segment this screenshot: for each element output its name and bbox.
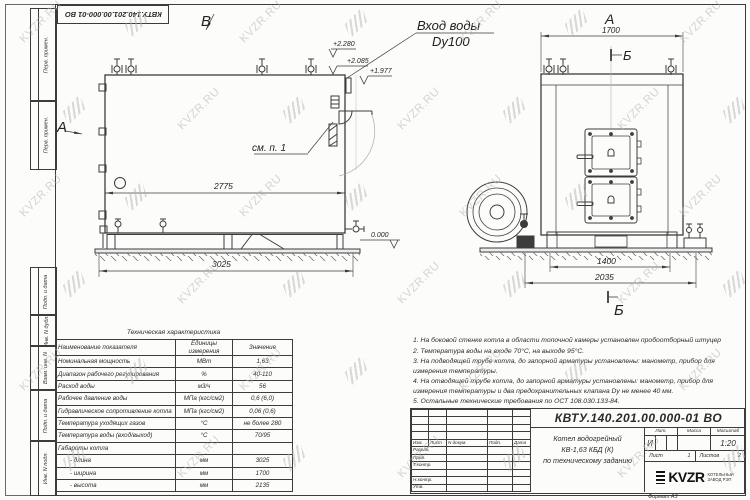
view-a-arrow	[66, 131, 82, 134]
base-frame	[107, 235, 343, 250]
water-inlet-flange	[329, 78, 375, 176]
sheet-number: 1	[688, 453, 691, 459]
scale-value: 1:20	[711, 436, 745, 451]
table-row: - высотамм2135	[56, 479, 293, 491]
role-tkontr: Т.контр.	[412, 462, 447, 469]
elevation-2280: +2.280	[333, 41, 355, 48]
note-1: 1. На боковой стенке котла в области топ…	[413, 336, 746, 346]
elevation-mark-1977	[360, 76, 392, 84]
top-valve	[126, 59, 136, 75]
elevation-2085: +2.085	[347, 58, 369, 65]
table-row: Температура воды (вход/выход)°С70/95	[56, 430, 293, 442]
note-4: 4. На отводящей трубе котла, до запорной…	[413, 377, 746, 396]
role-empty	[412, 469, 447, 476]
water-inlet-dn: Dy100	[432, 34, 470, 49]
table-row: Номинальная мощностьМВт1,63	[56, 356, 293, 368]
dim-2775: 2775	[213, 181, 233, 191]
scale-header: Масштаб	[711, 428, 745, 436]
upper-furnace-door	[577, 129, 641, 176]
elevation-zero: 0.000	[371, 232, 389, 239]
note-3: 3. На подводящей трубе котла, до запорно…	[413, 357, 746, 376]
logo-text: KVZR	[668, 469, 704, 485]
door-latch	[608, 196, 614, 203]
left-wall-fittings	[99, 84, 126, 248]
table-row: Диапазон рабочего регулирования%40-110	[56, 368, 293, 380]
table-row: Габариты котла	[56, 442, 293, 454]
kvzr-logo: KVZR КОТЕЛЬНЫЙ ЗАВОД РЭП	[645, 462, 745, 492]
revision-table: Изм. Лист N докум. Подп. Дата Разраб. Пр…	[411, 409, 531, 492]
blower-motor	[517, 236, 534, 248]
blower-fan	[467, 182, 534, 248]
section-label-b-top: Б	[623, 48, 632, 63]
tech-table: Наименование показателя Единицы измерени…	[55, 339, 293, 492]
view-label-b: В	[201, 13, 211, 30]
dim-2035: 2035	[594, 272, 614, 282]
elevation-1977: +1.977	[370, 68, 393, 75]
lit-header: Лит.	[645, 428, 678, 436]
col-header-value: Значение	[233, 340, 293, 356]
table-row: Расход водым3/ч56	[56, 380, 293, 392]
dim-1400: 1400	[597, 256, 616, 266]
mass-header: Масса	[678, 428, 711, 436]
water-inlet-label: Вход воды	[417, 18, 481, 33]
elevation-mark-2280	[329, 49, 356, 57]
top-valve	[666, 59, 676, 75]
top-valve	[558, 59, 568, 75]
sheets-total: 2	[738, 453, 741, 459]
ground-line	[95, 249, 360, 253]
tech-table-title: Техническая характеристика	[55, 329, 292, 336]
see-note-label: см. п. 1	[252, 143, 286, 154]
tech-table-header: Наименование показателя Единицы измерени…	[56, 340, 293, 356]
view-label-a: А	[56, 119, 67, 136]
top-valve	[306, 59, 316, 75]
drain-valve	[115, 219, 121, 233]
table-row: - ширинамм1700	[56, 467, 293, 479]
lit-value: И	[645, 436, 656, 451]
table-row: - длинамм3025	[56, 455, 293, 467]
dim-3025: 3025	[212, 259, 231, 269]
ground-hatch	[480, 252, 712, 260]
doc-number: КВТУ.140.201.00.000-01 ВО	[530, 409, 746, 428]
table-row: Температура уходящих газов°Сне более 280	[56, 417, 293, 429]
format-label: Формат А3	[648, 494, 678, 500]
side-drain-valve	[345, 221, 364, 232]
note-5: 5. Остальные технические требования по О…	[413, 397, 746, 407]
col-header-unit: Единицы измерения	[176, 340, 233, 356]
lower-furnace-door	[577, 177, 641, 223]
side-view-label-a: А	[604, 11, 614, 27]
section-label-b-bottom: Б	[614, 302, 624, 319]
table-row: Рабочее давление водыМПа (кгс/см2)0,6 (6…	[56, 393, 293, 405]
elevation-mark-zero	[360, 240, 400, 248]
dim-1700: 1700	[602, 26, 620, 35]
rev-header-row: Изм. Лист N докум. Подп. Дата	[412, 439, 531, 446]
table-row: Гидравлическое сопротивление котлаМПа (к…	[56, 405, 293, 417]
doc-number-top: КВТУ.140.201.00.000-01 ВО	[65, 10, 162, 19]
side-view	[467, 46, 712, 260]
door-latch	[608, 149, 614, 156]
role-razrab: Разраб.	[412, 447, 447, 454]
title-block: Изм. Лист N докум. Подп. Дата Разраб. Пр…	[410, 408, 745, 494]
right-pedestal-valves	[684, 224, 706, 248]
top-valve	[112, 59, 122, 75]
section-mark-b-top	[611, 49, 622, 61]
ground-line	[480, 248, 712, 252]
role-prov: Пров.	[412, 454, 447, 461]
product-name: Котел водогрейный КВ-1,63 КБД (К) по тех…	[530, 428, 644, 492]
coil-icon	[656, 471, 665, 484]
technical-notes: 1. На боковой стенке котла в области топ…	[413, 336, 746, 408]
title-block-right: Лит. Масса Масштаб И 1:20 Лист1 Листов2 …	[644, 428, 744, 492]
col-header-name: Наименование показателя	[56, 340, 176, 356]
role-utv: Утв.	[412, 484, 447, 491]
drain-valve	[160, 219, 166, 233]
logo-subtitle: КОТЕЛЬНЫЙ ЗАВОД РЭП	[707, 472, 733, 483]
role-nkontr: Н.контр.	[412, 477, 447, 484]
note-2: 2. Температура воды на входе 70°С, на вы…	[413, 347, 746, 357]
doc-number-top-box: КВТУ.140.201.00.000-01 ВО	[57, 5, 169, 24]
mass-value	[678, 436, 711, 451]
drawing-sheet: Перв. примен. Перв. примен. Подп. и дата…	[0, 0, 750, 500]
sheet-row: Лист1 Листов2	[645, 451, 745, 462]
top-valve	[257, 59, 267, 75]
sampling-port	[115, 178, 126, 189]
top-valve	[544, 59, 554, 75]
front-view	[95, 59, 375, 261]
elevation-mark-2085	[329, 66, 368, 74]
